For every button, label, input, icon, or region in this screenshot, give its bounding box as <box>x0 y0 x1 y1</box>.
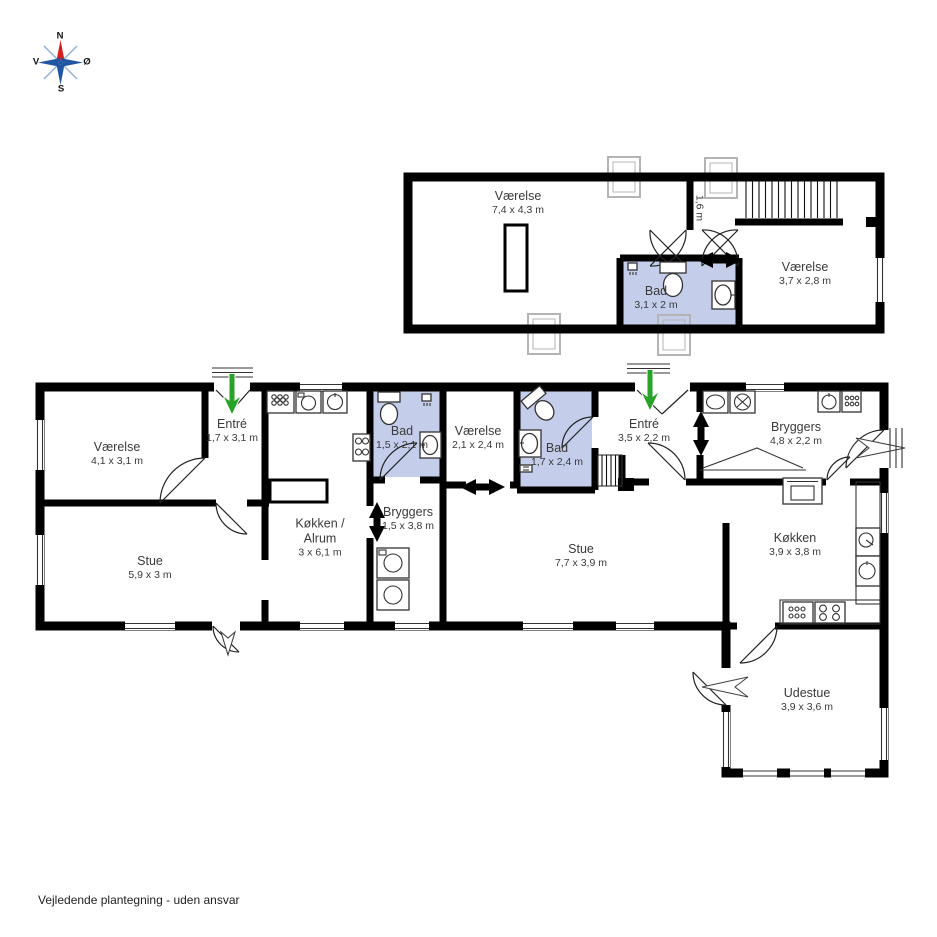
room-label-stue-oest: Stue 7,7 x 3,9 m <box>555 542 607 570</box>
hob-icon <box>267 391 294 413</box>
entrance-arrow-west <box>224 374 240 414</box>
kitchen-island <box>270 480 327 502</box>
stove-icon <box>353 434 370 461</box>
washing-machine-icon <box>703 391 728 413</box>
compass-west-label: V <box>33 57 39 68</box>
washing-machine-icon <box>296 391 321 413</box>
staircase-upper <box>746 180 837 218</box>
chimney <box>505 225 527 291</box>
room-label-vaerelse-vest: Værelse 4,1 x 3,1 m <box>91 440 143 468</box>
room-label-bryggers-oest: Bryggers 4,8 x 2,2 m <box>770 420 822 448</box>
room-label-vaerelse-midt: Værelse 2,1 x 2,4 m <box>452 424 504 452</box>
hall-width-label: 1,6 m <box>693 195 706 221</box>
floorplan-drawing <box>0 0 937 937</box>
hob-icon <box>783 602 845 623</box>
toilet-icon <box>378 392 400 425</box>
sink-icon <box>323 391 347 413</box>
room-label-entre-vest: Entré 1,7 x 3,1 m <box>206 417 258 445</box>
floorplan-canvas: N S V Ø Værelse 7,4 x 4,3 m Bad 3,1 x 2 … <box>0 0 937 937</box>
compass-rose-icon <box>38 40 83 85</box>
room-label-vaerelse-stor: Værelse 7,4 x 4,3 m <box>492 189 544 217</box>
compass-north-label: N <box>57 31 64 42</box>
fan-icon <box>730 391 755 413</box>
room-label-koekken-alrum: Køkken / Alrum 3 x 6,1 m <box>295 517 344 560</box>
room-label-bryggers-vest: Bryggers 1,5 x 3,8 m <box>382 505 434 533</box>
sink-icon <box>712 281 735 309</box>
washing-machine-icon <box>377 548 409 610</box>
sink-icon <box>856 556 880 586</box>
room-label-koekken-oest: Køkken 3,9 x 3,8 m <box>769 531 821 559</box>
room-label-udestue: Udestue 3,9 x 3,6 m <box>781 686 833 714</box>
drying-rack-icon <box>700 448 806 470</box>
compass-east-label: Ø <box>83 57 90 68</box>
room-label-entre-oest: Entré 3,5 x 2,2 m <box>618 417 670 445</box>
room-label-bad-vest: Bad 1,5 x 2,1 m <box>376 424 428 452</box>
room-label-bad-1sal: Bad 3,1 x 2 m <box>634 284 677 312</box>
room-label-stue-vest: Stue 5,9 x 3 m <box>128 554 171 582</box>
room-label-bad-oest: Bad 1,7 x 2,4 m <box>531 441 583 469</box>
hob-icon <box>842 391 861 412</box>
sink-icon <box>818 391 840 412</box>
disclaimer-text: Vejledende plantegning - uden ansvar <box>38 893 240 907</box>
oven-icon <box>783 478 822 504</box>
upper-floor-plan <box>408 157 885 355</box>
awning-lines <box>212 364 670 377</box>
compass-south-label: S <box>58 84 64 95</box>
fridge-icon <box>856 528 880 556</box>
room-label-vaerelse-lille: Værelse 3,7 x 2,8 m <box>779 260 831 288</box>
